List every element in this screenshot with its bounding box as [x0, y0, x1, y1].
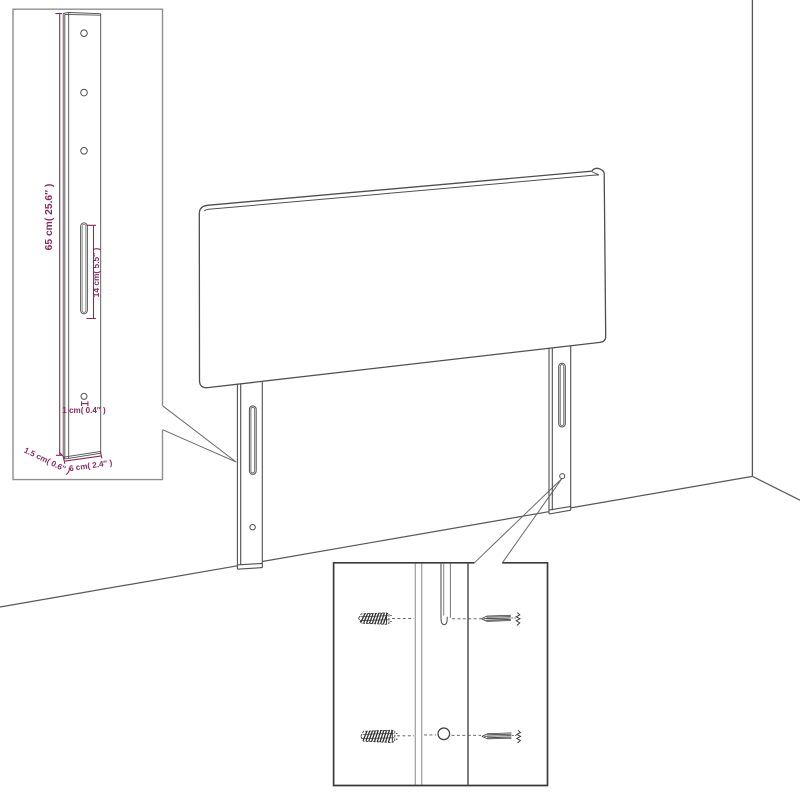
- svg-text:1 cm( 0.4″ ): 1 cm( 0.4″ ): [62, 406, 106, 415]
- svg-text:65 cm( 25.6″ ): 65 cm( 25.6″ ): [44, 184, 55, 251]
- svg-text:14 cm( 5.5″ ): 14 cm( 5.5″ ): [91, 247, 101, 297]
